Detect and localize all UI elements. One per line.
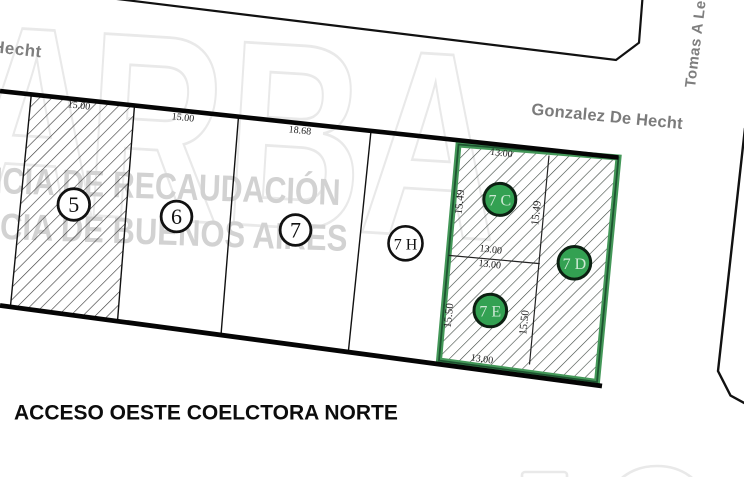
svg-text:ACCESO OESTE COELCTORA NORTE: ACCESO OESTE COELCTORA NORTE	[14, 402, 398, 425]
svg-text:7 H: 7 H	[394, 237, 418, 254]
svg-text:7 D: 7 D	[563, 256, 587, 273]
svg-text:7 E: 7 E	[479, 304, 501, 321]
svg-text:7 C: 7 C	[488, 193, 511, 210]
svg-text:5: 5	[68, 192, 79, 217]
svg-text:7: 7	[290, 218, 301, 243]
svg-text:6: 6	[171, 204, 182, 229]
svg-text:Hecht: Hecht	[0, 37, 43, 61]
